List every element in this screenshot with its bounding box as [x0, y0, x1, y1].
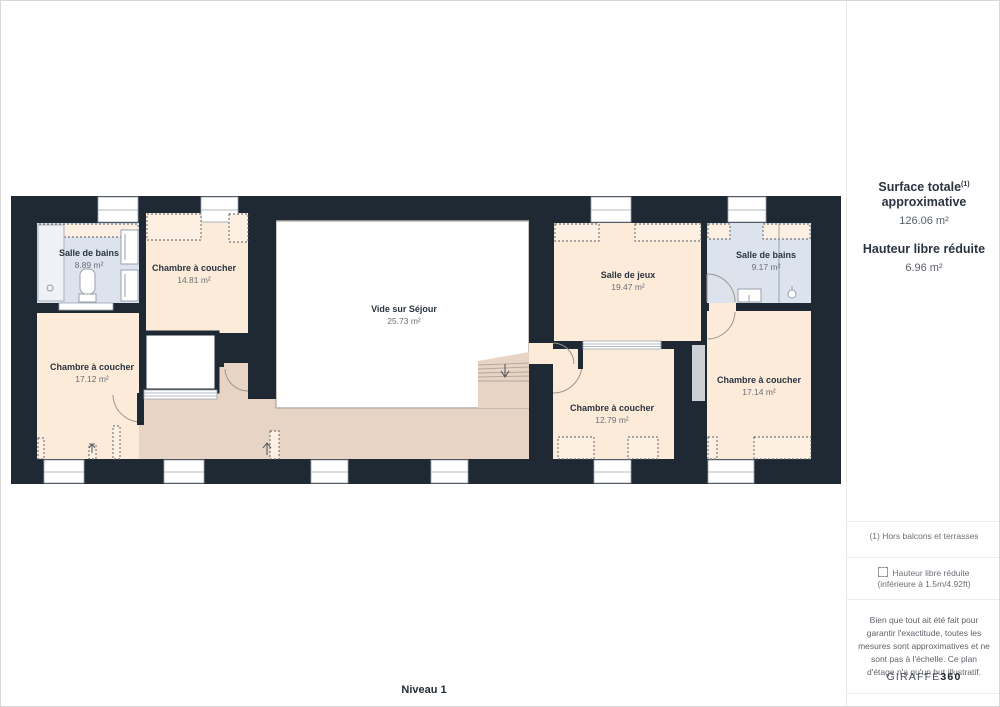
corridor-branch — [216, 367, 248, 399]
svg-text:Salle de jeux: Salle de jeux — [601, 270, 656, 280]
toilet-east — [788, 290, 796, 298]
svg-text:Salle de bains: Salle de bains — [59, 248, 119, 258]
disclaimer-text: Bien que tout ait été fait pour garantir… — [847, 614, 1000, 679]
surface-total-title-text: Surface totale — [878, 180, 961, 194]
surface-total-value: 126.06 m² — [847, 215, 1000, 227]
page-canvas: Salle de bains 8.89 m² Chambre à coucher… — [0, 0, 1000, 707]
legend-line2: (inférieure à 1.5m/4.92ft) — [877, 579, 970, 589]
svg-text:25.73 m²: 25.73 m² — [387, 316, 421, 326]
pocket-door-panel — [692, 345, 705, 401]
floor-plan: Salle de bains 8.89 m² Chambre à coucher… — [1, 1, 846, 707]
svg-text:14.81 m²: 14.81 m² — [177, 275, 211, 285]
staircase — [478, 352, 529, 408]
svg-text:8.89 m²: 8.89 m² — [75, 260, 104, 270]
svg-text:Chambre à coucher: Chambre à coucher — [50, 362, 135, 372]
brand-logo: GIRAFFE360 — [847, 671, 1000, 683]
svg-text:Chambre à coucher: Chambre à coucher — [152, 263, 237, 273]
surface-total-title: Surface totale(1) approximative — [847, 177, 1000, 210]
sidebar-divider-1 — [847, 521, 1000, 522]
shower — [38, 225, 64, 301]
dashed-square-icon — [878, 567, 888, 577]
door-sliding-bains-ouest — [59, 303, 113, 310]
measurement-sidebar: Surface totale(1) approximative 126.06 m… — [846, 1, 1000, 707]
brand-suffix: 360 — [940, 671, 961, 683]
reduced-height-value: 6.96 m² — [847, 262, 1000, 274]
shaft-void — [144, 333, 217, 391]
svg-text:Chambre à coucher: Chambre à coucher — [717, 375, 802, 385]
svg-text:Salle de bains: Salle de bains — [736, 250, 796, 260]
svg-text:17.14 m²: 17.14 m² — [742, 387, 776, 397]
sidebar-divider-4 — [847, 693, 1000, 694]
svg-text:17.12 m²: 17.12 m² — [75, 374, 109, 384]
svg-text:19.47 m²: 19.47 m² — [611, 282, 645, 292]
sink-2 — [121, 270, 138, 301]
legend-line1: Hauteur libre réduite — [892, 568, 969, 578]
svg-text:12.79 m²: 12.79 m² — [595, 415, 629, 425]
balconies-note: (1) Hors balcons et terrasses — [847, 531, 1000, 542]
surface-total-block: Surface totale(1) approximative 126.06 m… — [847, 177, 1000, 227]
sidebar-divider-3 — [847, 599, 1000, 600]
svg-text:Chambre à coucher: Chambre à coucher — [570, 403, 655, 413]
reduced-height-title: Hauteur libre réduite — [847, 242, 1000, 257]
reduced-height-block: Hauteur libre réduite 6.96 m² — [847, 242, 1000, 274]
brand-name: GIRAFFE — [886, 671, 940, 683]
floor-label: Niveau 1 — [401, 684, 446, 696]
svg-text:Vide sur Séjour: Vide sur Séjour — [371, 304, 437, 314]
surface-total-footnote-marker: (1) — [961, 181, 970, 188]
sidebar-divider-2 — [847, 557, 1000, 558]
svg-text:9.17 m²: 9.17 m² — [752, 262, 781, 272]
reduced-height-legend: Hauteur libre réduite (inférieure à 1.5m… — [847, 567, 1000, 590]
sink-1 — [121, 230, 138, 264]
toilet-west — [80, 269, 95, 294]
room-chambre-sud-ouest — [37, 313, 139, 459]
surface-total-title-line2: approximative — [882, 195, 967, 209]
